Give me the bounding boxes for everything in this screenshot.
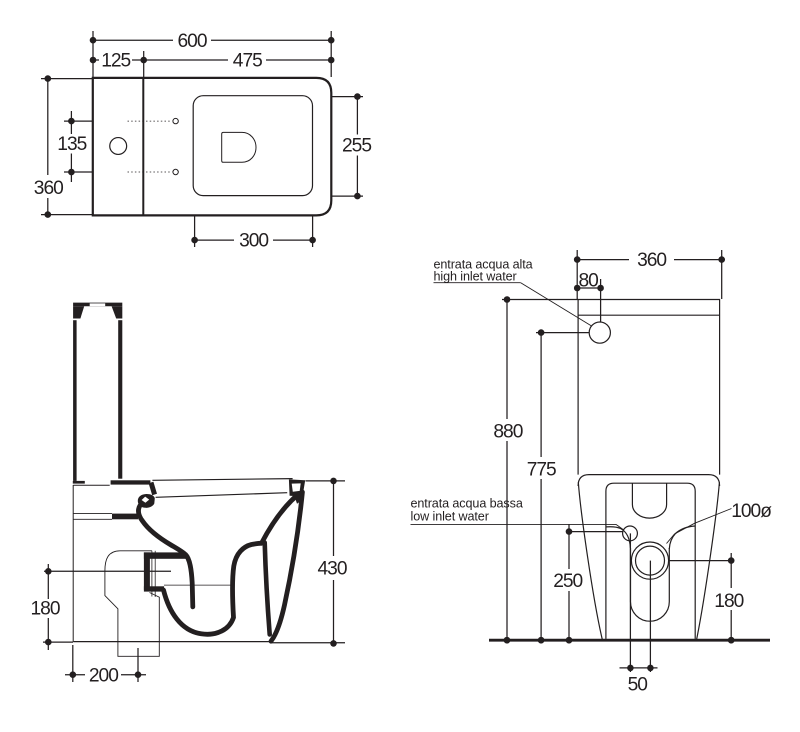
svg-text:775: 775	[527, 459, 556, 480]
svg-text:180: 180	[30, 599, 59, 620]
svg-text:360: 360	[34, 178, 63, 199]
svg-text:475: 475	[233, 51, 262, 72]
svg-text:80: 80	[579, 270, 599, 291]
svg-text:125: 125	[101, 51, 130, 72]
svg-text:200: 200	[89, 665, 118, 686]
svg-text:250: 250	[553, 571, 582, 592]
svg-text:50: 50	[628, 674, 648, 695]
svg-text:360: 360	[637, 250, 666, 271]
svg-text:255: 255	[342, 136, 371, 157]
svg-text:430: 430	[317, 559, 346, 580]
svg-text:entrata acqua bassa: entrata acqua bassa	[411, 497, 523, 511]
svg-text:880: 880	[493, 421, 522, 442]
svg-text:180: 180	[714, 591, 743, 612]
svg-text:300: 300	[239, 231, 268, 252]
svg-text:600: 600	[177, 31, 206, 52]
svg-text:100ø: 100ø	[731, 501, 772, 522]
svg-text:low inlet water: low inlet water	[411, 510, 489, 524]
svg-text:high inlet water: high inlet water	[434, 270, 517, 284]
svg-text:135: 135	[57, 134, 86, 155]
